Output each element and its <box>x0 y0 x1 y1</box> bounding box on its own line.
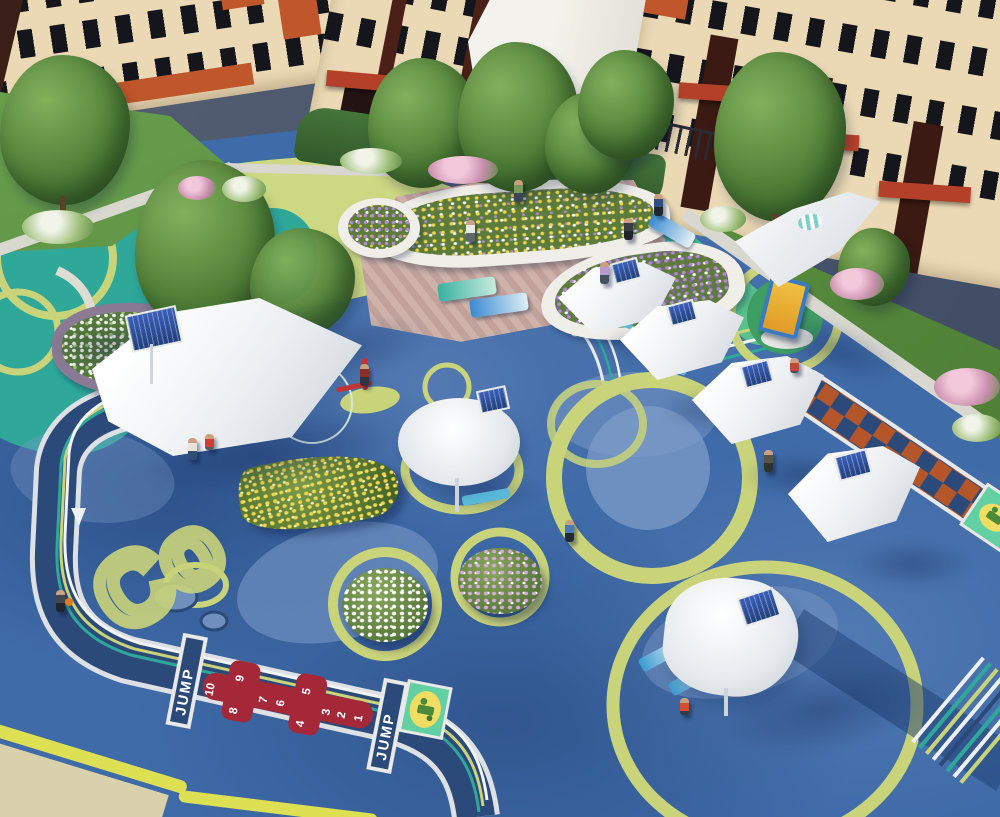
person <box>764 450 773 472</box>
person <box>600 262 609 284</box>
flower-mound-purple <box>458 548 542 614</box>
person <box>360 364 369 386</box>
flowering-bush-white <box>222 176 266 202</box>
person <box>624 218 633 240</box>
svg-text:10: 10 <box>203 682 218 697</box>
flowering-bush-pink <box>934 368 1000 406</box>
courtyard-render: Co <box>0 0 1000 817</box>
flowering-bush-white <box>700 206 746 232</box>
umbrella-pole <box>724 688 728 716</box>
facade-accent-orange <box>273 0 322 40</box>
flowering-bush-white <box>340 148 402 174</box>
person <box>514 180 523 202</box>
flowering-bush-white <box>952 414 1000 442</box>
umbrella-pole <box>455 478 459 512</box>
person <box>56 590 65 612</box>
deck-planter <box>338 198 420 258</box>
flowering-bush-white <box>22 210 94 244</box>
flower-bed <box>348 205 410 249</box>
person <box>565 520 574 542</box>
sensory-tile <box>400 681 452 739</box>
person-child <box>790 358 799 373</box>
shadow <box>850 540 975 588</box>
person <box>466 220 475 242</box>
person <box>188 438 197 460</box>
person-child <box>680 698 689 715</box>
flowering-bush-pink <box>178 176 216 200</box>
umbrella-round <box>398 398 520 486</box>
flowering-bush-pink <box>428 156 498 184</box>
flowering-bush-pink <box>830 268 884 300</box>
basketball <box>65 598 73 606</box>
person-child <box>205 434 214 450</box>
canopy-pole <box>150 344 153 384</box>
flower-mound-white <box>342 568 428 642</box>
person <box>654 194 663 216</box>
